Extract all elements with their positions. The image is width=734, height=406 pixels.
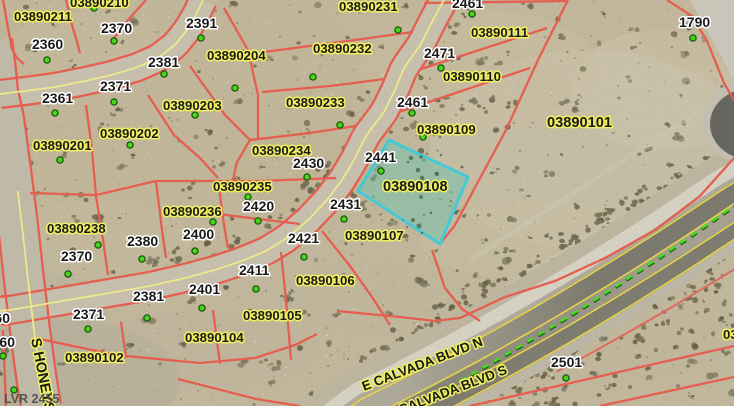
svg-text:03890236: 03890236	[163, 204, 222, 219]
svg-text:2411: 2411	[239, 262, 270, 278]
svg-text:03890105: 03890105	[243, 308, 302, 323]
svg-text:2391: 2391	[186, 15, 217, 31]
svg-text:03890108: 03890108	[383, 179, 448, 195]
svg-text:2380: 2380	[127, 233, 158, 249]
svg-text:03890106: 03890106	[296, 273, 355, 288]
svg-text:03890201: 03890201	[33, 138, 92, 153]
svg-text:LVR 2455: LVR 2455	[4, 392, 59, 406]
svg-text:03890104: 03890104	[185, 330, 244, 345]
svg-text:2371: 2371	[73, 306, 104, 322]
svg-text:2381: 2381	[148, 54, 179, 70]
svg-text:2371: 2371	[100, 78, 131, 94]
svg-text:2360: 2360	[32, 36, 63, 52]
svg-text:03890109: 03890109	[417, 122, 476, 137]
svg-text:2501: 2501	[551, 354, 582, 370]
svg-text:2420: 2420	[243, 198, 274, 214]
svg-text:1790: 1790	[679, 14, 710, 30]
svg-text:03890203: 03890203	[163, 98, 222, 113]
svg-text:03890119: 03890119	[723, 327, 734, 342]
svg-text:2381: 2381	[133, 288, 164, 304]
svg-text:03890202: 03890202	[100, 126, 159, 141]
svg-text:03890233: 03890233	[286, 95, 345, 110]
svg-text:03890102: 03890102	[65, 350, 124, 365]
svg-text:03890111: 03890111	[471, 25, 528, 40]
svg-text:2401: 2401	[189, 281, 220, 297]
svg-text:2460: 2460	[0, 334, 15, 350]
svg-text:03890101: 03890101	[547, 115, 612, 131]
svg-text:03890210: 03890210	[70, 0, 129, 10]
svg-text:03890231: 03890231	[339, 0, 398, 14]
svg-text:2431: 2431	[330, 196, 361, 212]
svg-text:03890211: 03890211	[14, 9, 72, 24]
svg-text:03890110: 03890110	[443, 69, 501, 84]
svg-text:03890232: 03890232	[313, 41, 372, 56]
svg-text:2430: 2430	[293, 155, 324, 171]
svg-text:2370: 2370	[101, 20, 132, 36]
svg-text:2421: 2421	[288, 230, 319, 246]
svg-text:2361: 2361	[42, 90, 73, 106]
svg-text:03890204: 03890204	[207, 48, 266, 63]
svg-text:2461: 2461	[452, 0, 483, 11]
svg-text:03890107: 03890107	[345, 228, 404, 243]
svg-text:2471: 2471	[424, 45, 455, 61]
svg-text:2370: 2370	[61, 248, 92, 264]
svg-text:03890235: 03890235	[213, 179, 272, 194]
svg-text:2441: 2441	[365, 149, 396, 165]
svg-text:2360: 2360	[0, 310, 10, 326]
svg-text:2461: 2461	[397, 94, 428, 110]
svg-text:03890238: 03890238	[47, 221, 106, 236]
svg-text:2400: 2400	[183, 226, 214, 242]
